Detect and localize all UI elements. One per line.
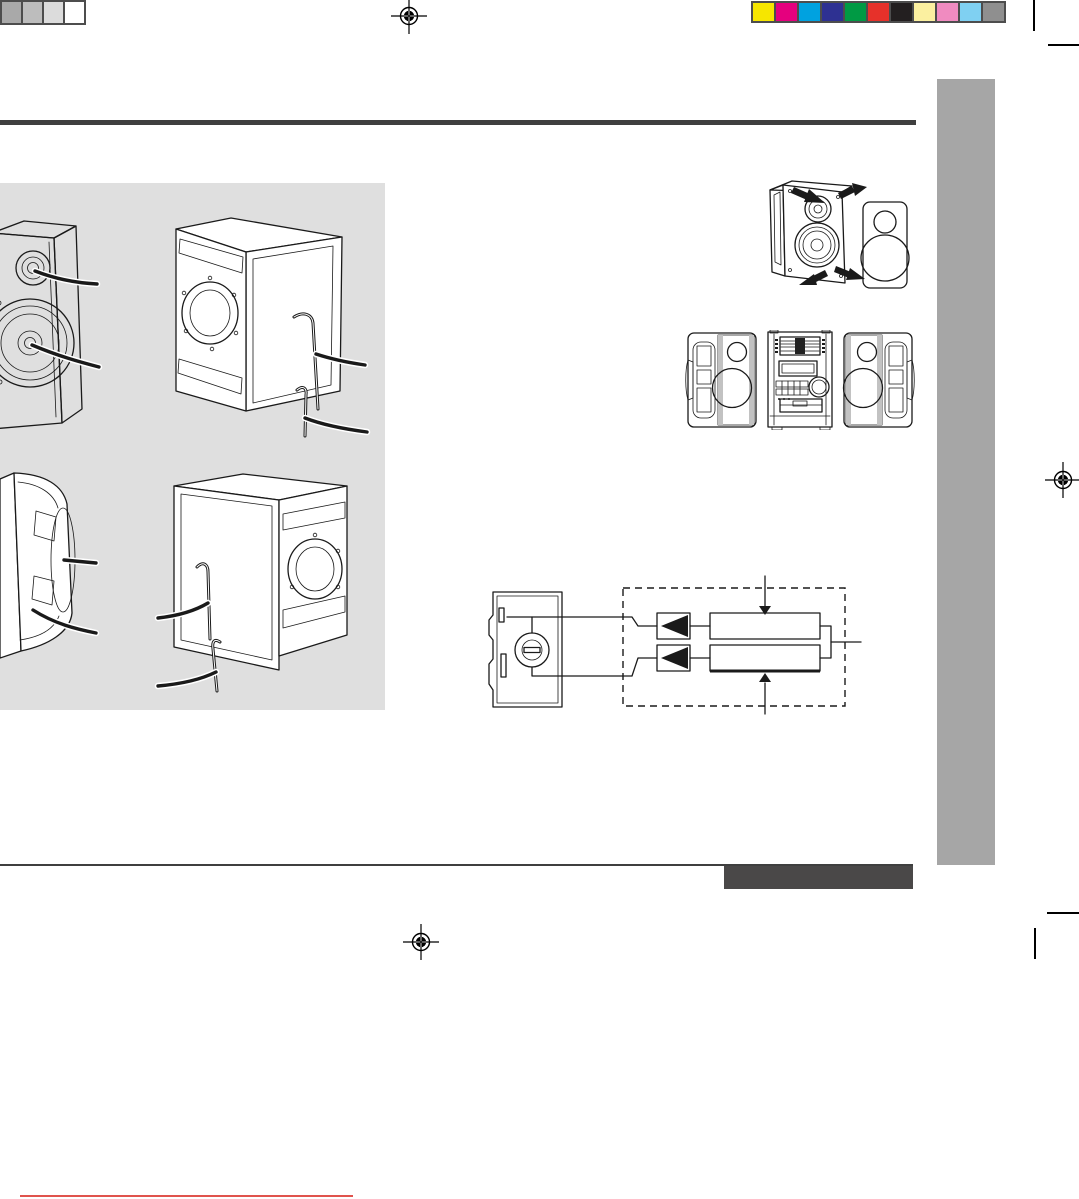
button-row [776,381,808,387]
right-speaker-front [844,333,915,427]
crop-mark-bottom-right-horizontal [1047,912,1079,914]
color-swatch [797,1,822,23]
color-calibration-bar [751,1,1006,23]
main-unit-front [768,330,832,430]
grayscale-calibration-bar [0,0,86,25]
speaker-cabinet-perspective-left [176,218,367,436]
registration-mark-bottom [403,924,439,960]
terminal-knob [515,633,549,667]
color-swatch [889,1,914,23]
speaker-front-view [0,221,99,429]
crop-mark-bottom-right-vertical [1034,928,1036,959]
color-swatch [866,1,891,23]
speaker-cabinet-perspective-right [158,474,347,691]
crop-mark-top-right-horizontal [1048,44,1079,46]
color-swatch [63,0,86,25]
left-speaker-front [686,333,756,427]
arrow-block-upper [661,615,688,637]
registration-mark-right [1045,462,1079,498]
speaker-side-view [0,473,96,658]
color-swatch [21,0,44,25]
footer-title-bar [724,866,913,889]
registration-mark-top [391,0,427,34]
color-swatch [958,1,983,23]
speaker-terminal-panel [489,592,562,707]
dashed-enclosure [623,588,845,706]
color-swatch [0,0,23,25]
crossover-network [507,576,861,714]
driver-block-upper [710,613,820,639]
speaker-grille [861,202,909,288]
crop-mark-top-right-vertical [1033,0,1035,31]
terminal-slot [501,654,506,677]
color-swatch [843,1,868,23]
color-swatch [935,1,960,23]
speaker-illustration-panel [0,183,385,710]
red-underline [20,1195,353,1197]
grille-attach-detach-illustration [762,175,912,305]
system-front-illustration [680,330,920,430]
color-swatch [981,1,1006,23]
color-swatch [42,0,65,25]
driver-block-lower [710,645,820,671]
speaker-wiring-diagram [485,570,865,720]
section-sidebar-tab [937,79,995,865]
color-swatch [774,1,799,23]
color-swatch [820,1,845,23]
display [779,361,817,376]
terminal-slot [499,608,504,622]
color-swatch [751,1,776,23]
speaker-illustrations [0,183,385,710]
manual-page [0,0,1079,1199]
color-swatch [912,1,937,23]
arrow-block-lower [661,647,688,669]
header-rule [0,120,916,125]
